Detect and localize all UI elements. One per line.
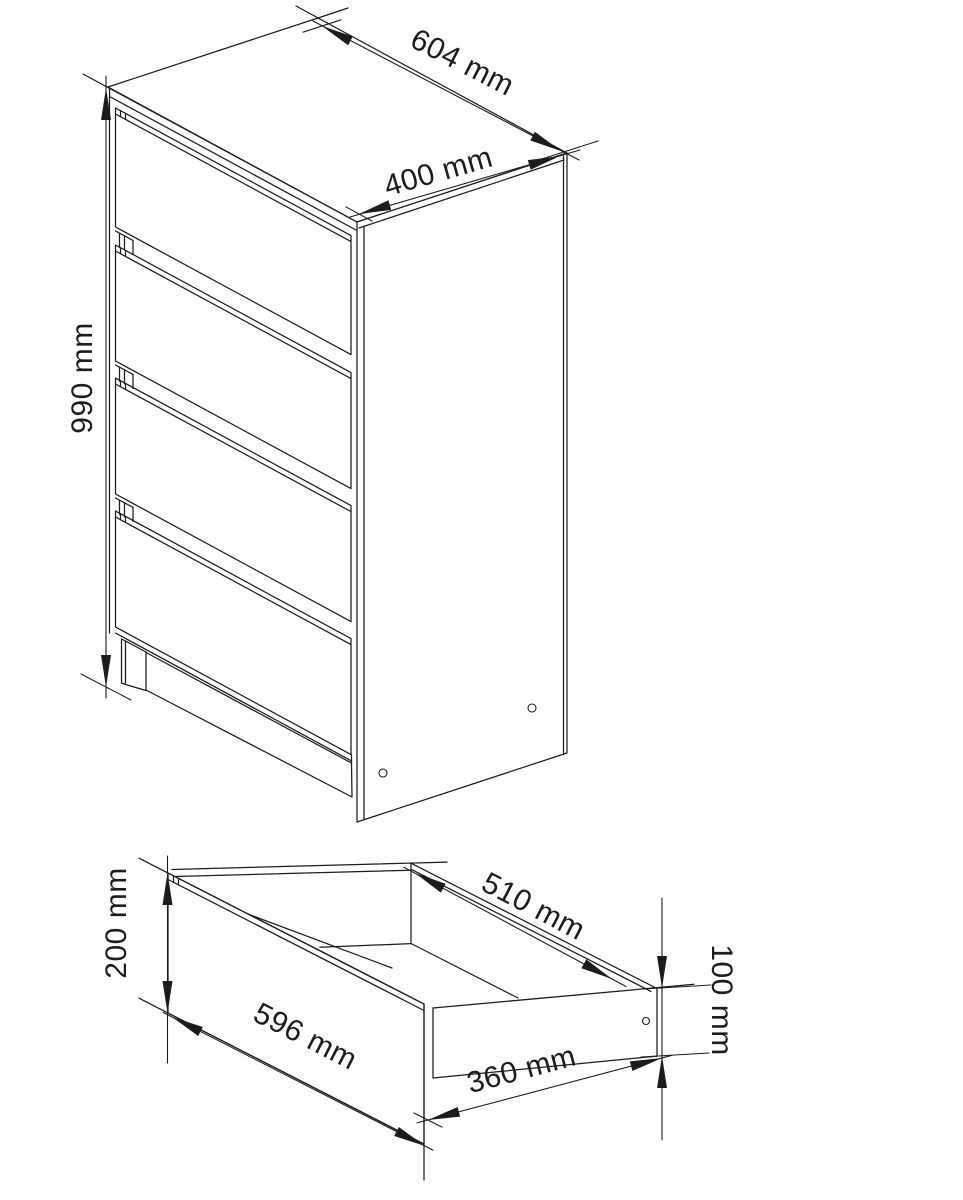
drawer-view: 200 mm 596 mm 510 mm 360 mm 100 <box>100 856 738 1180</box>
dim-label-200: 200 mm <box>100 867 133 978</box>
foot-bottom-edge <box>122 683 147 691</box>
arrowhead-down <box>657 956 667 988</box>
dim-label-360: 360 mm <box>463 1039 579 1100</box>
cabinet-top-back-edge-extension <box>296 6 320 19</box>
dim-side-length-360: 360 mm <box>414 1039 672 1127</box>
technical-drawing-page: 990 mm 604 mm 400 mm <box>0 0 963 1200</box>
dim-label-510: 510 mm <box>476 866 590 947</box>
left-wall-top-band <box>175 870 411 876</box>
back-wall-top-edge <box>411 863 657 988</box>
dim-label-100: 100 mm <box>705 944 738 1055</box>
plinth-right-edge <box>352 763 353 797</box>
arrowhead-right <box>630 1058 662 1071</box>
dim-front-height-200: 200 mm <box>100 856 173 1063</box>
dim-side-height-100: 100 mm <box>641 898 738 1140</box>
cabinet-view: 990 mm 604 mm 400 mm <box>66 6 598 822</box>
arrowhead-left <box>415 873 446 893</box>
arrowhead-left <box>428 1107 460 1120</box>
drawer-side-screw-hole <box>643 1018 650 1025</box>
cabinet-side-panel <box>357 153 567 822</box>
arrowhead-down <box>101 655 111 687</box>
technical-drawing-canvas: 990 mm 604 mm 400 mm <box>0 0 963 1200</box>
front-panel-face <box>168 873 424 1144</box>
cabinet-foot <box>122 639 147 691</box>
bottom-back-inner-edge <box>411 944 518 999</box>
dim-ref-line <box>641 1053 709 1057</box>
cabinet-top-left-edge-extension <box>318 8 348 18</box>
dim-inner-depth-510: 510 mm <box>404 866 626 986</box>
dim-label-990: 990 mm <box>66 322 99 433</box>
arrowhead-up <box>657 1056 667 1088</box>
